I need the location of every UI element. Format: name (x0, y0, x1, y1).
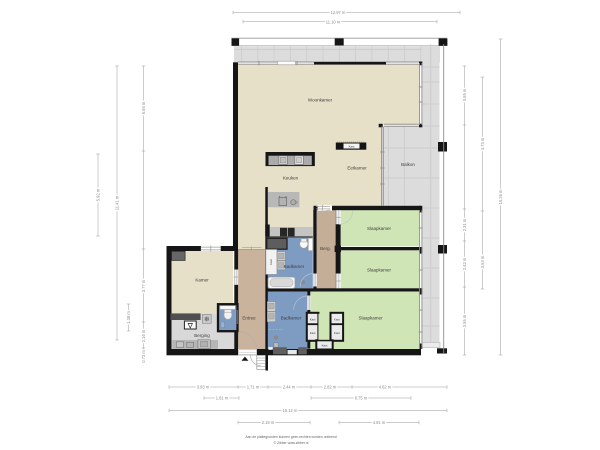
svg-text:2.31 m: 2.31 m (462, 218, 467, 231)
svg-text:4.73 m: 4.73 m (480, 137, 485, 150)
svg-text:3.53 m: 3.53 m (480, 255, 485, 268)
svg-text:2.16 m: 2.16 m (141, 329, 146, 342)
svg-text:Kamer: Kamer (195, 278, 209, 283)
svg-text:Kast: Kast (349, 145, 355, 149)
svg-text:Berging: Berging (194, 333, 210, 338)
svg-text:3.77 m: 3.77 m (141, 279, 146, 292)
svg-text:2.19 m: 2.19 m (262, 420, 275, 425)
svg-text:1.71 m: 1.71 m (247, 385, 260, 390)
svg-text:Slaapkamer: Slaapkamer (358, 316, 383, 321)
svg-text:Kast: Kast (310, 331, 316, 335)
svg-text:12.97 m: 12.97 m (331, 10, 346, 15)
svg-text:3.55 m: 3.55 m (462, 314, 467, 327)
svg-text:Woonkamer: Woonkamer (308, 98, 333, 103)
svg-text:11.41 m: 11.41 m (115, 195, 120, 210)
svg-text:5.92 m: 5.92 m (96, 188, 101, 201)
svg-text:1.81 m: 1.81 m (216, 396, 229, 401)
svg-text:Kast: Kast (334, 331, 340, 335)
svg-text:Badkamer: Badkamer (281, 316, 302, 321)
svg-text:15.12 m: 15.12 m (283, 408, 298, 413)
svg-text:Kast: Kast (334, 317, 340, 321)
svg-text:2.44 m: 2.44 m (283, 385, 296, 390)
svg-text:16.26 m: 16.26 m (498, 189, 503, 204)
svg-text:Berg.: Berg. (320, 246, 331, 251)
svg-text:Balkon: Balkon (401, 162, 415, 167)
svg-text:5.65 m: 5.65 m (141, 101, 146, 114)
svg-text:Entree: Entree (242, 316, 256, 321)
svg-text:0.73 m: 0.73 m (141, 350, 146, 363)
svg-text:Kast: Kast (322, 343, 328, 347)
svg-text:▽: ▽ (187, 323, 194, 330)
svg-text:Kast: Kast (310, 317, 316, 321)
svg-text:Aan de plattegronden kunnen ge: Aan de plattegronden kunnen geen rechten… (245, 435, 336, 439)
svg-text:1.38 m: 1.38 m (126, 311, 131, 324)
svg-text:2.82 m: 2.82 m (324, 385, 337, 390)
svg-text:Kast: Kast (269, 259, 273, 265)
svg-text:4.62 m: 4.62 m (379, 385, 392, 390)
svg-text:Slaapkamer: Slaapkamer (367, 268, 392, 273)
svg-text:11.10 m: 11.10 m (326, 19, 341, 24)
svg-text:3.65 m: 3.65 m (462, 88, 467, 101)
svg-text:4.91 m: 4.91 m (373, 420, 386, 425)
svg-text:Badkamer: Badkamer (284, 264, 305, 269)
svg-text:© Zibber www.zibber.nl: © Zibber www.zibber.nl (274, 441, 309, 445)
svg-text:❄: ❄ (204, 316, 210, 324)
svg-text:2.43 m: 2.43 m (462, 257, 467, 270)
svg-text:6.75 m: 6.75 m (355, 396, 368, 401)
svg-text:Keuken: Keuken (283, 176, 299, 181)
svg-text:Slaapkamer: Slaapkamer (367, 226, 392, 231)
svg-text:Eetkamer: Eetkamer (347, 166, 367, 171)
svg-text:3.93 m: 3.93 m (197, 385, 210, 390)
